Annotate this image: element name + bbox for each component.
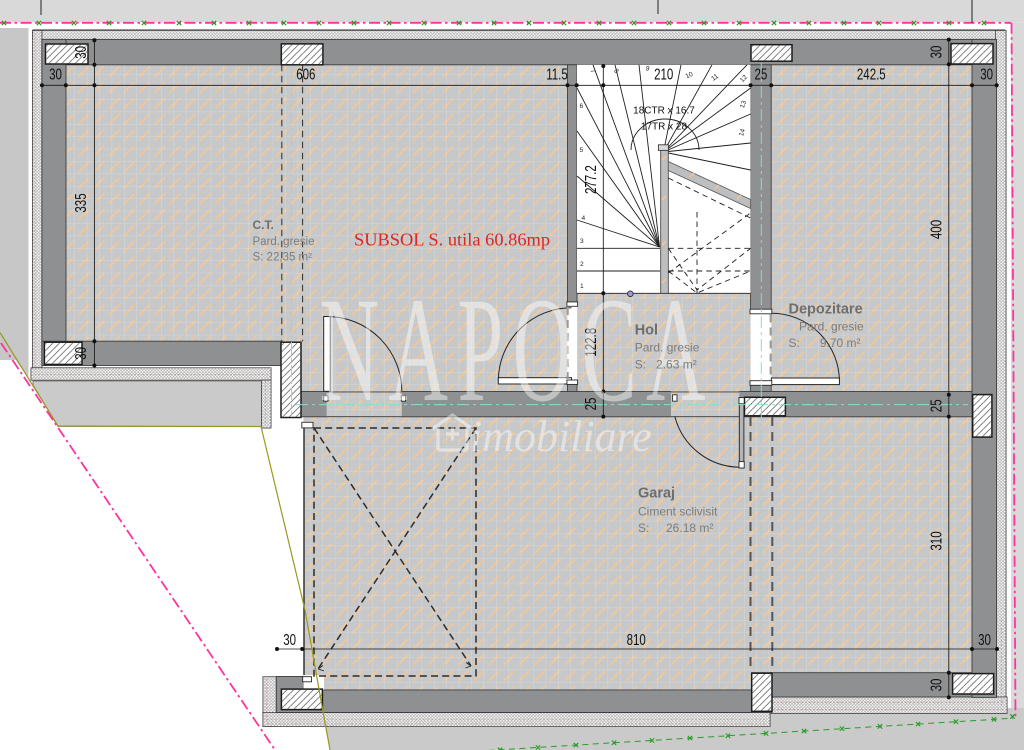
- svg-text:30: 30: [927, 678, 945, 691]
- svg-text:25: 25: [754, 65, 767, 83]
- svg-text:Hol: Hol: [635, 323, 658, 339]
- svg-text:4: 4: [582, 215, 586, 222]
- svg-text:Pard. gresie: Pard. gresie: [799, 320, 864, 334]
- svg-text:400: 400: [927, 220, 945, 239]
- svg-text:17TR x 28: 17TR x 28: [641, 122, 688, 133]
- svg-text:imobiliare: imobiliare: [470, 412, 652, 461]
- svg-text:S: 26.18 m²: S: 26.18 m²: [638, 521, 713, 535]
- svg-text:Pard. gresie: Pard. gresie: [253, 236, 315, 248]
- svg-text:25: 25: [927, 399, 945, 412]
- svg-text:310: 310: [927, 531, 945, 550]
- svg-text:6: 6: [580, 103, 584, 110]
- svg-text:30: 30: [283, 630, 296, 648]
- svg-text:30: 30: [980, 65, 993, 83]
- svg-text:30: 30: [71, 347, 89, 360]
- svg-text:277.2: 277.2: [581, 165, 599, 194]
- svg-text:30: 30: [927, 45, 945, 58]
- svg-text:Pard. gresie: Pard. gresie: [635, 341, 700, 355]
- svg-text:Garaj: Garaj: [638, 486, 675, 502]
- svg-text:11.5: 11.5: [546, 65, 568, 83]
- svg-text:Depozitare: Depozitare: [789, 302, 863, 318]
- svg-text:SUBSOL S. utila 60.86mp: SUBSOL S. utila 60.86mp: [354, 230, 550, 250]
- svg-text:18CTR x 16.7: 18CTR x 16.7: [633, 106, 695, 117]
- svg-text:606: 606: [296, 65, 315, 83]
- svg-text:335: 335: [71, 193, 89, 212]
- svg-text:210: 210: [654, 65, 673, 83]
- svg-text:30: 30: [71, 46, 89, 59]
- svg-text:C.T.: C.T.: [253, 218, 274, 232]
- svg-text:S: 9.70 m²: S: 9.70 m²: [789, 336, 861, 350]
- svg-text:5: 5: [580, 147, 584, 154]
- svg-text:3: 3: [580, 238, 584, 245]
- svg-text:810: 810: [627, 630, 646, 648]
- svg-text:242.5: 242.5: [857, 65, 886, 83]
- svg-text:30: 30: [49, 65, 62, 83]
- svg-text:Ciment sclivisit: Ciment sclivisit: [638, 505, 718, 519]
- svg-text:30: 30: [978, 630, 991, 648]
- svg-text:S: 2.63 m²: S: 2.63 m²: [635, 358, 697, 372]
- svg-text:S: 22,35 m²: S: 22,35 m²: [253, 252, 313, 264]
